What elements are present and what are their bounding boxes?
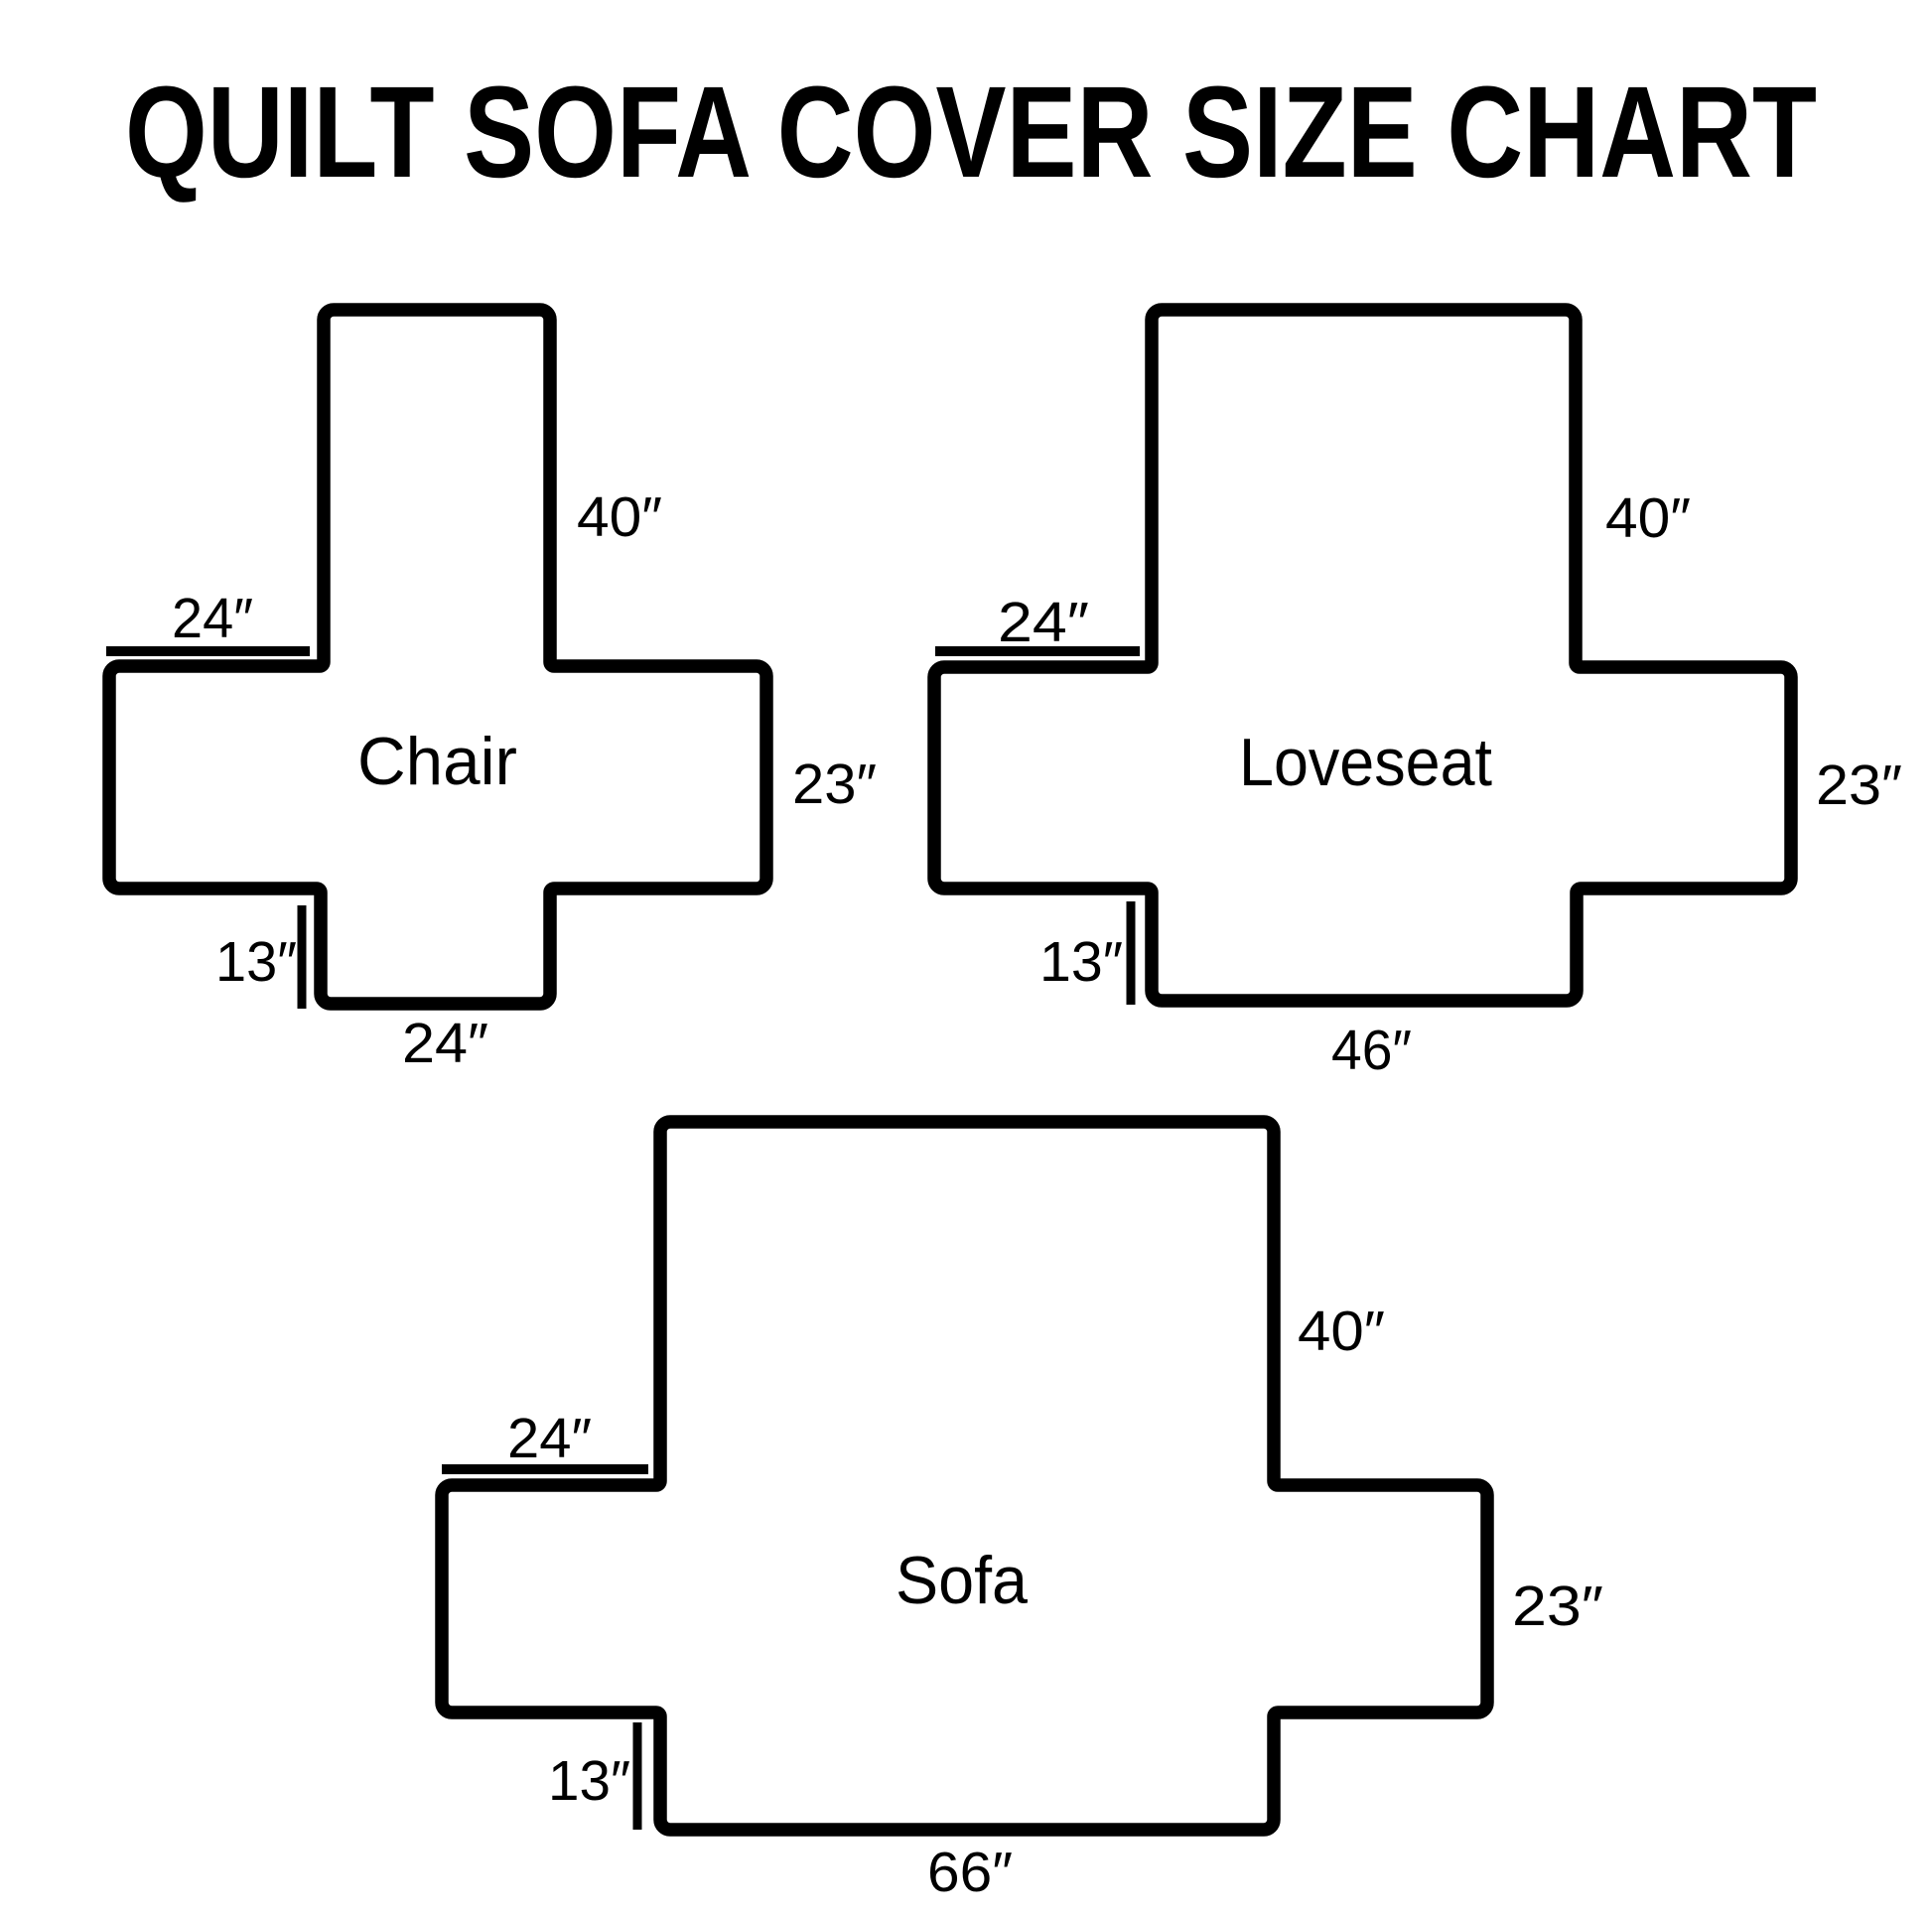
- svg-text:46″: 46″: [1331, 1019, 1412, 1082]
- svg-text:24″: 24″: [507, 1407, 592, 1470]
- svg-text:24″: 24″: [402, 1012, 488, 1075]
- svg-text:66″: 66″: [927, 1841, 1013, 1904]
- svg-text:Sofa: Sofa: [896, 1543, 1028, 1618]
- svg-text:24″: 24″: [172, 587, 253, 650]
- svg-text:13″: 13″: [215, 930, 297, 994]
- svg-text:24″: 24″: [998, 591, 1089, 654]
- svg-text:23″: 23″: [792, 753, 877, 816]
- svg-text:13″: 13″: [1039, 930, 1123, 994]
- svg-text:40″: 40″: [1298, 1300, 1385, 1363]
- svg-text:40″: 40″: [577, 485, 662, 549]
- svg-text:40″: 40″: [1605, 486, 1691, 550]
- svg-text:13″: 13″: [548, 1749, 630, 1813]
- svg-text:Loveseat: Loveseat: [1239, 725, 1492, 800]
- svg-text:Chair: Chair: [357, 724, 517, 799]
- svg-text:23″: 23″: [1816, 753, 1902, 817]
- svg-text:QUILT SOFA COVER SIZE CHART: QUILT SOFA COVER SIZE CHART: [125, 59, 1817, 205]
- svg-text:23″: 23″: [1512, 1575, 1603, 1638]
